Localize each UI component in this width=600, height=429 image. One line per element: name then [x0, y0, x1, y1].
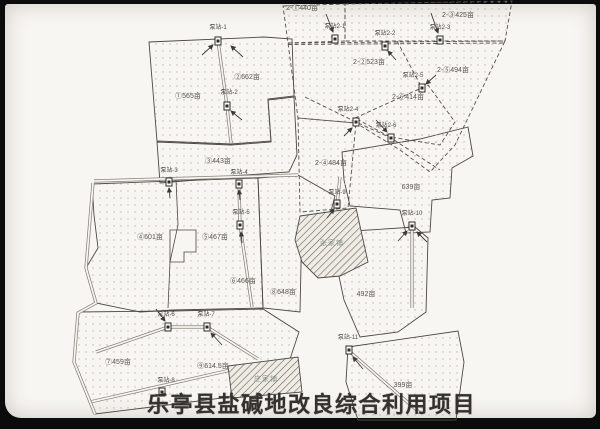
pump-station-icon — [382, 42, 389, 51]
pump-station-icon — [215, 37, 222, 46]
pump-station-icon — [353, 118, 360, 127]
pump-station-icon — [224, 102, 231, 111]
pump-station-label: 泵站2-2 — [375, 28, 396, 37]
pump-station-label: 泵站-11 — [338, 332, 358, 341]
pump-station-icon — [409, 222, 416, 231]
map-title: 乐亭县盐碱地改良综合利用项目 — [147, 387, 476, 419]
pump-station-label: 泵站-7 — [197, 309, 214, 318]
pump-station-label: 泵站-6 — [157, 309, 174, 318]
pump-station-label: 泵站2-3 — [430, 22, 451, 31]
pump-station-label: 泵站-10 — [402, 208, 423, 217]
scanned-map-photo: ①565亩②662亩③443亩④601亩⑤467亩⑥466亩⑦459亩⑧648亩… — [0, 0, 600, 429]
pump-station-icon — [204, 323, 211, 332]
pump-station-label: 泵站-3 — [160, 165, 177, 174]
pump-station-icon — [237, 221, 244, 230]
pump-station-label: 泵站2-6 — [376, 120, 397, 129]
pump-station-icon — [236, 180, 243, 189]
pump-station-label: 泵站-2 — [220, 87, 237, 96]
pump-station-label: 泵站2-5 — [403, 70, 424, 79]
pump-station-icon — [332, 35, 339, 44]
pump-station-label: 泵站-1 — [209, 22, 226, 31]
pump-station-label: 泵站-9 — [328, 187, 345, 196]
pump-station-label: 泵站-5 — [232, 207, 249, 216]
pump-station-icon — [419, 84, 426, 93]
pump-stations-layer: 泵站-1泵站-2泵站-3泵站-4泵站-5泵站-6泵站-7泵站-8泵站-9泵站-1… — [0, 0, 600, 429]
pump-station-icon — [165, 323, 172, 332]
pump-station-label: 泵站-8 — [157, 375, 174, 384]
pump-station-label: 泵站-4 — [230, 167, 247, 176]
pump-station-icon — [346, 346, 353, 355]
pump-station-label: 泵站2-1 — [325, 21, 346, 30]
pump-station-icon — [388, 134, 395, 143]
pump-station-label: 泵站2-4 — [338, 104, 359, 113]
pump-station-icon — [437, 36, 444, 45]
pump-station-icon — [166, 178, 173, 187]
pump-station-icon — [334, 200, 341, 209]
